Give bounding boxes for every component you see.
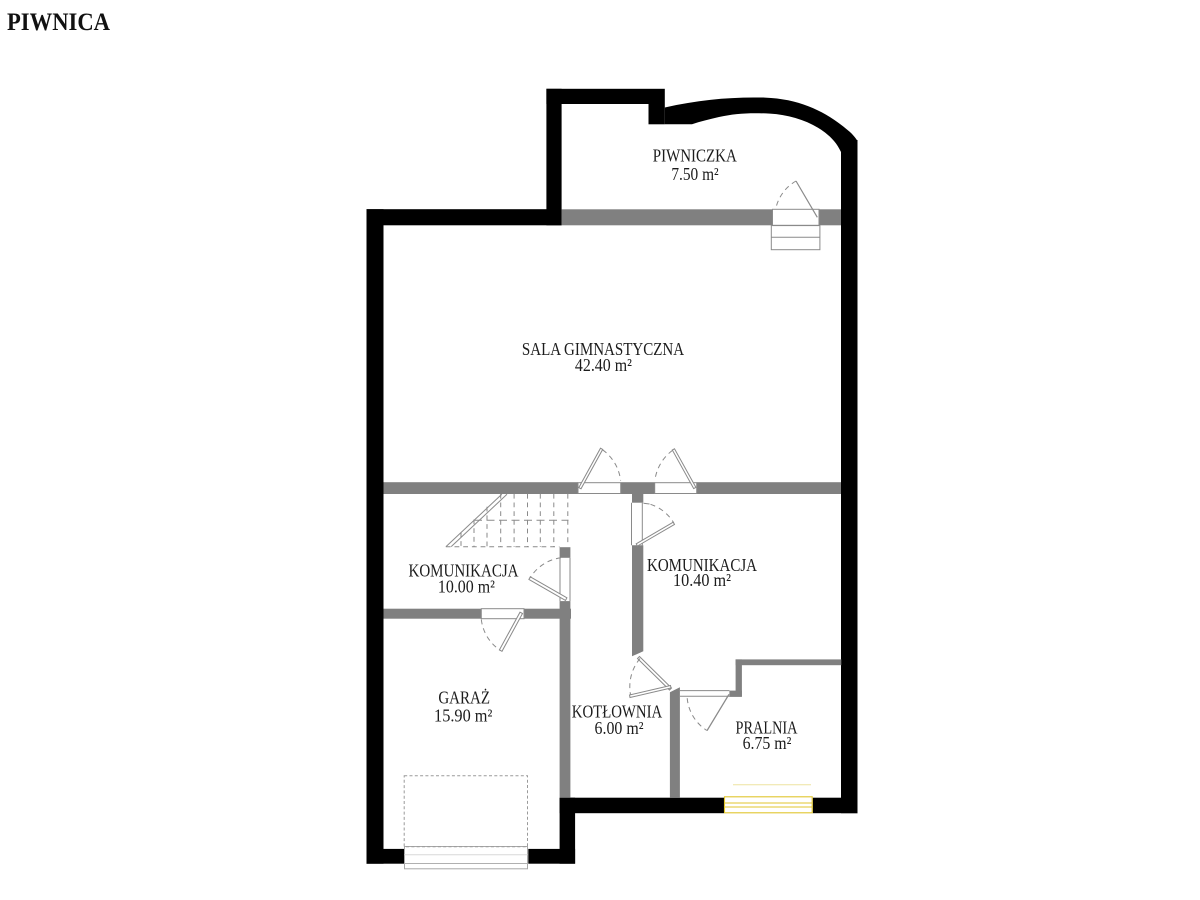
svg-text:6.00 m²: 6.00 m² [595,718,644,738]
svg-text:10.40 m²: 10.40 m² [673,570,731,590]
svg-text:PIWNICA: PIWNICA [7,9,110,36]
svg-text:10.00 m²: 10.00 m² [438,577,495,597]
svg-text:6.75 m²: 6.75 m² [743,733,792,753]
svg-text:PIWNICZKA: PIWNICZKA [653,146,737,166]
svg-text:42.40 m²: 42.40 m² [575,355,632,375]
svg-text:GARAŻ: GARAŻ [438,687,490,707]
svg-text:15.90 m²: 15.90 m² [434,706,492,726]
svg-text:7.50 m²: 7.50 m² [671,164,718,184]
